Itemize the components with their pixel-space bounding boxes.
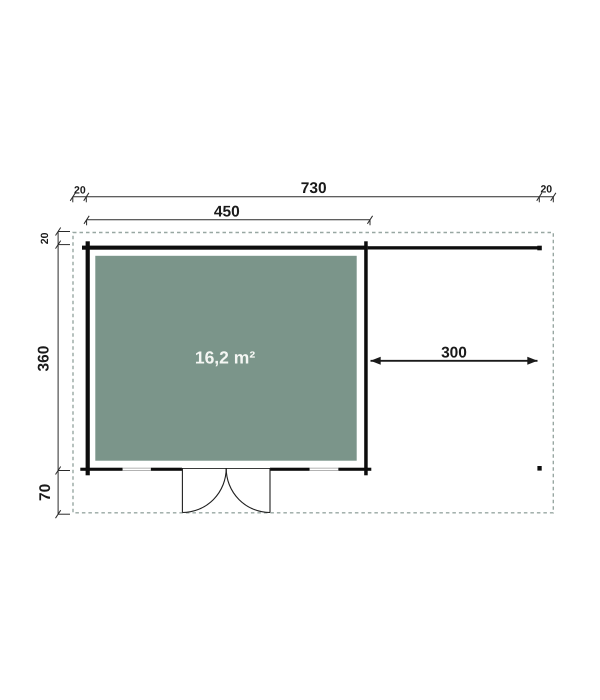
svg-text:70: 70 bbox=[37, 484, 54, 501]
svg-text:20: 20 bbox=[39, 232, 51, 244]
svg-text:730: 730 bbox=[301, 180, 327, 197]
svg-text:360: 360 bbox=[36, 346, 53, 372]
svg-text:300: 300 bbox=[441, 345, 467, 362]
svg-text:20: 20 bbox=[74, 184, 86, 196]
svg-text:450: 450 bbox=[214, 203, 240, 220]
svg-text:16,2 m²: 16,2 m² bbox=[195, 348, 255, 368]
svg-text:20: 20 bbox=[540, 184, 552, 196]
